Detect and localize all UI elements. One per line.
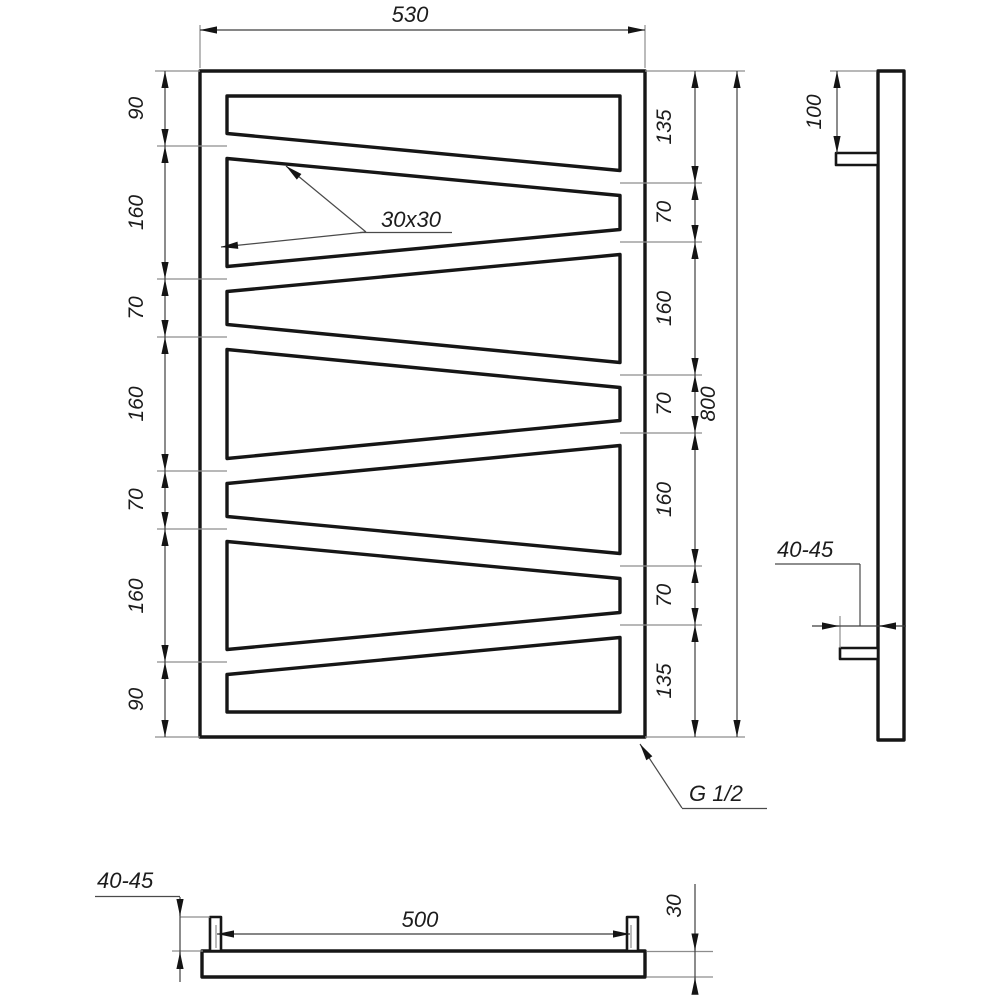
right-dim-label-7: 135: [653, 663, 676, 698]
bottom-tube-outline: [202, 951, 645, 977]
front-left-dimension-chain: 90 160 70 160 70 160 90: [125, 71, 165, 737]
bottom-wall-distance-label: 40-45: [97, 868, 154, 893]
towel-rail-drawing: 530 90 160 70 160 70 160 90: [0, 0, 1000, 1000]
front-view: 530 90 160 70 160 70 160 90: [125, 2, 767, 809]
front-right-dimension-chain: 135 70 160 70 160 70 135: [653, 71, 695, 737]
side-bottom-bracket: [840, 648, 878, 659]
left-dim-label-5: 70: [125, 488, 148, 512]
front-width-dimension: 530: [200, 2, 645, 30]
left-dim-label-6: 160: [125, 578, 148, 613]
bottom-span-dimension: 500: [216, 907, 631, 948]
side-top-offset-dimension: 100: [803, 71, 876, 153]
left-dim-label-3: 70: [125, 296, 148, 320]
bottom-view: 500 40-45 30: [95, 868, 713, 994]
bottom-wall-distance-dimension: 40-45: [95, 868, 210, 982]
right-dim-label-4: 70: [653, 392, 676, 416]
side-wall-distance-label: 40-45: [777, 537, 834, 562]
right-dim-label-3: 160: [653, 291, 676, 326]
side-tube-outline: [878, 71, 904, 740]
left-dim-label-2: 160: [125, 195, 148, 230]
side-view: 100 40-45: [775, 71, 906, 740]
side-top-offset-label: 100: [803, 94, 826, 129]
bottom-span-label: 500: [402, 907, 439, 932]
left-dim-label-1: 90: [125, 97, 148, 121]
right-dim-label-6: 70: [653, 584, 676, 608]
connection-label: G 1/2: [689, 781, 743, 806]
right-dim-label-5: 160: [653, 482, 676, 517]
connection-callout: G 1/2: [640, 744, 767, 809]
right-dim-label-2: 70: [653, 201, 676, 225]
bottom-tube-depth-label: 30: [663, 894, 686, 918]
left-dim-label-7: 90: [125, 688, 148, 712]
front-width-label: 530: [392, 2, 429, 27]
tube-size-label: 30x30: [381, 207, 442, 232]
right-dim-label-1: 135: [653, 109, 676, 144]
front-height-dimension: 800: [697, 71, 737, 737]
bottom-tube-depth-dimension: 30: [647, 884, 713, 994]
technical-drawing-page: 530 90 160 70 160 70 160 90: [0, 0, 1000, 1000]
left-dim-label-4: 160: [125, 386, 148, 421]
side-top-bracket: [836, 153, 878, 165]
front-height-label: 800: [697, 386, 720, 421]
